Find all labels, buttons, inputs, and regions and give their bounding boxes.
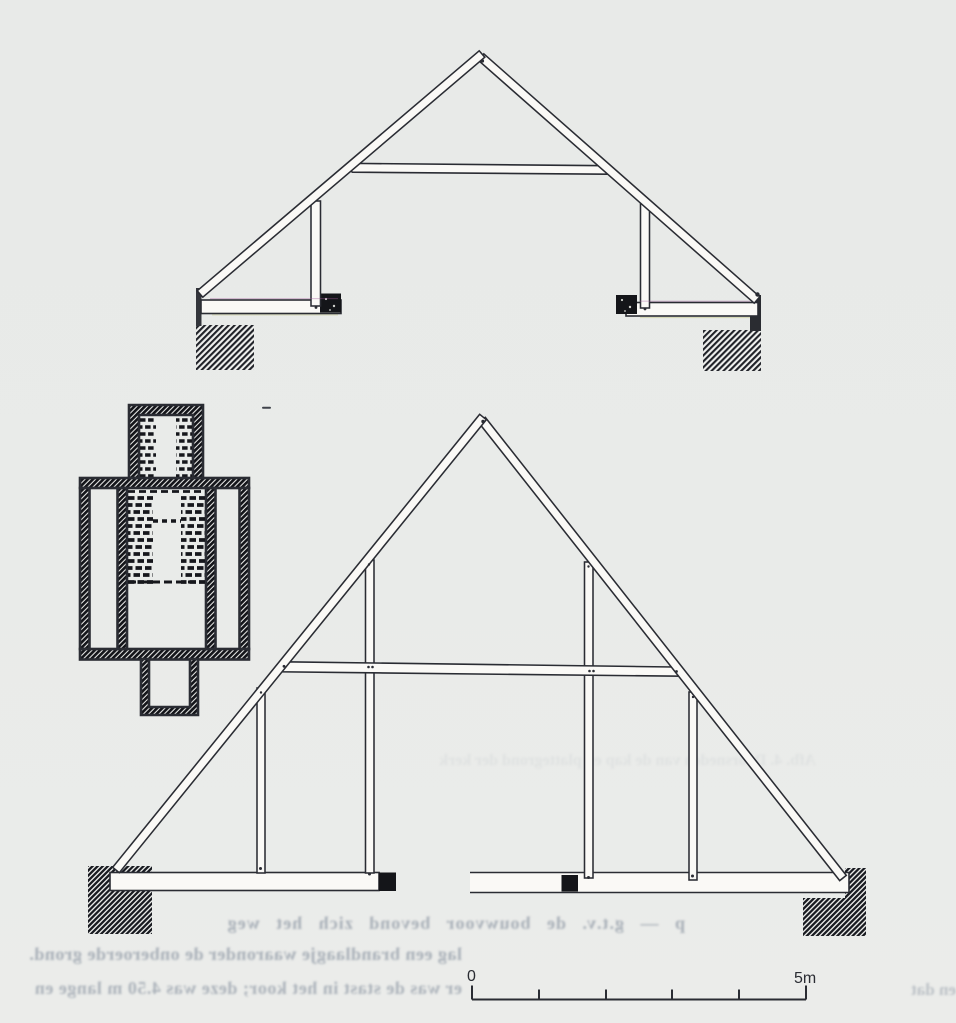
svg-text:5m: 5m (794, 970, 816, 987)
svg-text:0: 0 (467, 968, 476, 985)
